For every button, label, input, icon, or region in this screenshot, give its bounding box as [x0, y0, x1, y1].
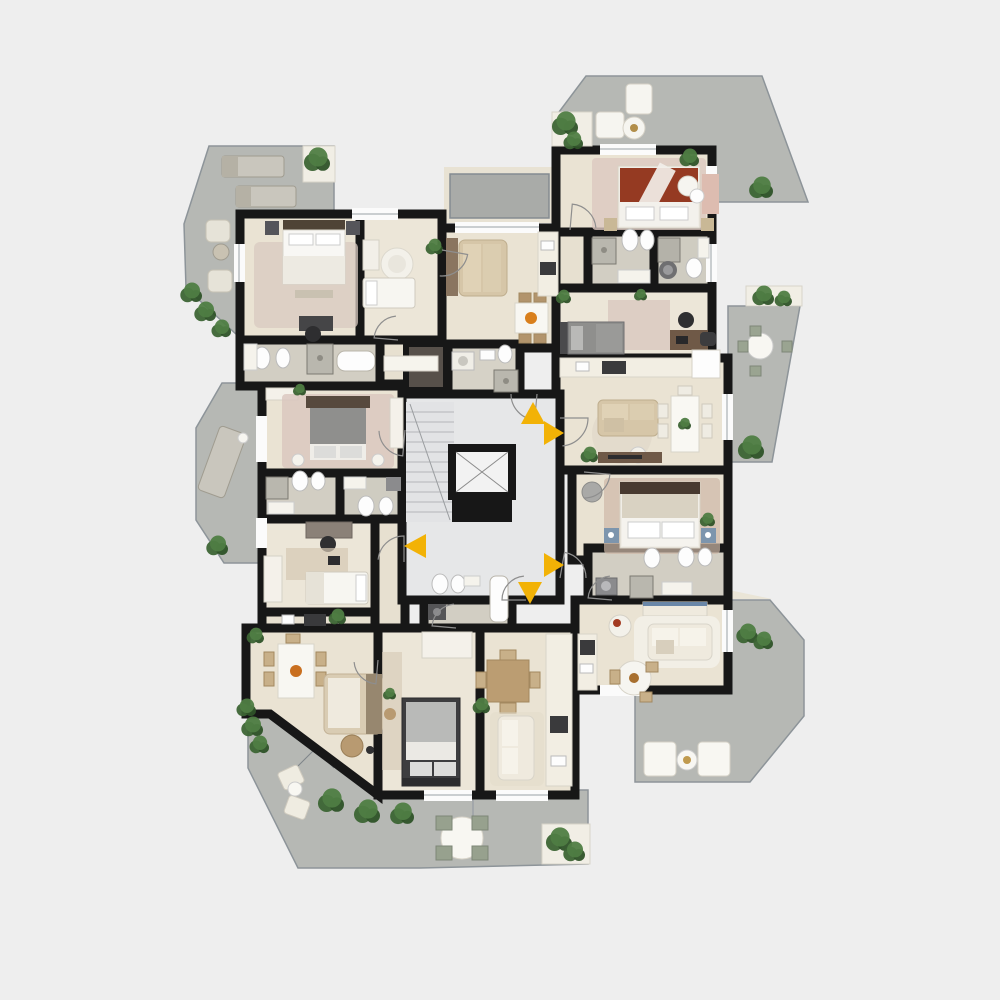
side-table: [384, 708, 396, 720]
plant-foliage: [742, 435, 761, 454]
bathtub: [490, 576, 508, 622]
outdoor-chair: [472, 816, 488, 830]
island-stool: [700, 332, 716, 346]
plant-foliage: [240, 699, 254, 713]
table-dish: [630, 124, 638, 132]
bidet: [451, 575, 465, 593]
plant-foliage: [210, 536, 226, 552]
outdoor-chair: [472, 846, 488, 860]
outdoor-chair: [436, 846, 452, 860]
sideboard: [384, 356, 438, 371]
dining-chair: [640, 692, 652, 702]
floor-plan-canvas: [0, 0, 1000, 1000]
lounger: [698, 742, 730, 776]
tv: [608, 455, 642, 459]
bidet: [311, 472, 325, 490]
office-chair: [678, 312, 694, 328]
bidet: [698, 548, 712, 566]
sink-vanity: [618, 270, 650, 283]
kitchen-sink: [580, 664, 593, 673]
nightstand-lamp: [705, 532, 711, 538]
room-hall-right: [556, 232, 588, 288]
table-dish: [683, 756, 691, 764]
plant-foliage: [245, 717, 261, 733]
console-blue-top: [643, 602, 707, 606]
vanity-desk: [702, 174, 719, 214]
plant-foliage: [778, 291, 791, 304]
bidet: [640, 230, 654, 250]
floor-plan-svg: [0, 0, 1000, 1000]
nightstand: [265, 221, 279, 235]
plant-foliage: [358, 799, 377, 818]
plant-foliage: [584, 447, 597, 460]
desk-chair: [305, 326, 321, 342]
shower: [658, 238, 680, 262]
washing-machine: [386, 477, 401, 491]
toilet: [678, 547, 694, 567]
table-dish: [525, 312, 537, 324]
dining-chair: [316, 652, 326, 666]
sofa-cushion: [630, 404, 654, 420]
sink-vanity: [464, 576, 480, 586]
bed-duvet: [283, 256, 345, 284]
shower-drain: [601, 247, 607, 253]
sofa-cushion: [602, 404, 628, 420]
window-balcony-door: [256, 416, 267, 462]
picture-frame: [328, 556, 340, 565]
bed-blanket: [622, 494, 698, 518]
bed-pillow: [571, 326, 583, 350]
plant-foliage: [753, 176, 771, 194]
outdoor-table: [288, 782, 302, 796]
bed-pillow: [662, 522, 694, 538]
armchair: [582, 482, 602, 502]
balcony-center-floor: [450, 174, 549, 218]
bed-headboard: [402, 778, 460, 786]
lounger-back: [222, 156, 238, 177]
pouf: [341, 735, 363, 757]
cushion-red: [613, 619, 621, 627]
plant-foliage: [476, 698, 489, 711]
plant-foliage: [757, 632, 771, 646]
dining-table: [487, 660, 529, 702]
plant-foliage: [253, 736, 267, 750]
plant-foliage: [567, 842, 583, 858]
cooktop: [540, 262, 556, 275]
nightstand: [701, 218, 714, 231]
nightstand: [604, 218, 617, 231]
bed-pillow: [314, 446, 336, 458]
sink-vanity: [480, 350, 495, 360]
window: [256, 518, 267, 548]
bed-bench: [295, 290, 333, 298]
plant-foliage: [567, 132, 581, 146]
cooktop: [304, 614, 326, 626]
bed-sheet: [406, 742, 456, 760]
toilet: [498, 345, 512, 363]
shower: [630, 576, 653, 598]
bed-blanket: [596, 324, 622, 352]
sink-vanity: [244, 344, 257, 370]
washing-machine-door: [601, 581, 611, 591]
bidet: [276, 348, 290, 368]
outdoor-chair: [750, 326, 761, 336]
kitchen-sink: [541, 241, 554, 250]
sofa-throw: [656, 640, 674, 654]
plant-foliage: [550, 827, 569, 846]
bed-headboard: [306, 396, 370, 408]
lounger: [644, 742, 676, 776]
dining-chair: [264, 672, 274, 686]
plant-foliage: [683, 149, 697, 163]
plant-foliage: [215, 320, 229, 334]
toilet: [358, 496, 374, 516]
nightstand: [346, 221, 360, 235]
washing-machine-door: [433, 608, 441, 616]
bathtub: [337, 351, 375, 371]
bed-pillow: [289, 234, 313, 245]
cooktop: [580, 640, 595, 655]
wall-block: [452, 496, 512, 522]
plant-foliage: [636, 289, 646, 299]
toilet: [432, 574, 448, 594]
washing-machine-door: [458, 356, 468, 366]
wardrobe: [446, 238, 458, 296]
outdoor-armchair: [208, 270, 232, 292]
bed-pillow: [316, 234, 340, 245]
kitchen-island: [692, 350, 720, 378]
wardrobe: [264, 556, 282, 602]
dining-chair: [519, 334, 531, 343]
sink-vanity: [662, 582, 692, 595]
bed-pillow: [626, 207, 654, 220]
bed-blanket: [306, 572, 324, 604]
dining-chair: [702, 424, 712, 438]
wardrobe: [422, 632, 472, 658]
plant-foliage: [558, 290, 569, 301]
shower-drain: [317, 355, 323, 361]
shower: [266, 477, 288, 499]
dining-chair: [534, 334, 546, 343]
nightstand-lamp: [608, 532, 614, 538]
outdoor-armchair: [626, 84, 652, 114]
dining-chair: [476, 672, 486, 688]
sofa-cushion: [680, 628, 706, 646]
kitchen-sink: [576, 362, 589, 371]
toilet: [292, 471, 308, 491]
plant-foliage: [385, 688, 395, 698]
plant-foliage: [295, 384, 305, 394]
plant-foliage: [429, 239, 442, 252]
bed-headboard: [560, 322, 568, 354]
outdoor-table: [747, 333, 773, 359]
sofa-throw: [604, 418, 624, 432]
outdoor-table: [238, 433, 248, 443]
bed-pillow: [434, 762, 456, 776]
floor-lamp: [366, 746, 374, 754]
outdoor-chair: [750, 366, 761, 376]
bed-pillow: [356, 575, 366, 601]
dining-chair: [678, 386, 692, 395]
nightstand: [372, 454, 384, 466]
sofa-cushion: [502, 748, 518, 774]
sofa-cushion: [502, 720, 518, 746]
plant-foliage: [394, 802, 412, 820]
toilet: [686, 258, 702, 278]
dining-chair: [519, 293, 531, 302]
bidet: [379, 497, 393, 515]
outdoor-armchair: [206, 220, 230, 242]
nightstand: [292, 454, 304, 466]
outdoor-chair: [782, 341, 792, 352]
toilet: [622, 229, 638, 251]
laptop: [676, 336, 688, 344]
outdoor-table: [213, 244, 229, 260]
dining-chair: [658, 404, 668, 418]
bed-pillow: [628, 522, 660, 538]
dining-chair: [658, 424, 668, 438]
bed-headboard: [620, 482, 700, 494]
dining-chair: [530, 672, 540, 688]
dining-chair: [500, 703, 516, 713]
table-dish: [629, 673, 639, 683]
plant-foliage: [756, 286, 772, 302]
plant-stand: [363, 240, 379, 270]
vanity-chair: [690, 189, 704, 203]
plant-foliage: [308, 147, 327, 166]
cooktop: [550, 716, 568, 733]
cooktop: [602, 361, 626, 374]
sofa-cushion: [463, 244, 481, 292]
table-dish: [290, 665, 302, 677]
desk: [306, 522, 352, 538]
plant-foliage: [680, 418, 690, 428]
plant-foliage: [332, 609, 345, 622]
sink-vanity: [268, 502, 294, 514]
plant-foliage: [184, 283, 200, 299]
staircase: [406, 402, 454, 522]
dresser: [390, 398, 403, 448]
kitchen-sink: [282, 615, 294, 624]
outdoor-armchair: [596, 112, 624, 138]
balcony-right: [728, 306, 800, 462]
outdoor-chair: [436, 816, 452, 830]
plant-foliage: [322, 788, 341, 807]
bed-duvet: [310, 408, 366, 444]
bed-pillow: [340, 446, 362, 458]
armchair-fluffy-seat: [388, 255, 406, 273]
sofa-back: [366, 674, 382, 734]
kitchen-sink: [551, 756, 566, 766]
bed-pillow: [410, 762, 432, 776]
plant-foliage: [740, 624, 756, 640]
plant-foliage: [250, 628, 263, 641]
armchair: [609, 615, 631, 637]
bed-pillow: [660, 207, 688, 220]
dining-chair: [646, 662, 658, 672]
plant-foliage: [702, 513, 713, 524]
dining-chair: [286, 634, 300, 643]
sofa-cushion: [328, 678, 360, 728]
dining-chair: [702, 404, 712, 418]
dining-chair: [610, 670, 620, 684]
washing-machine-door: [663, 265, 673, 275]
sink-vanity: [344, 477, 366, 489]
dining-chair: [264, 652, 274, 666]
sink-vanity: [698, 238, 709, 258]
sofa-cushion: [483, 244, 501, 292]
lounger-back: [236, 186, 251, 207]
bed-pillow: [366, 281, 377, 305]
dining-chair: [500, 650, 516, 660]
toilet: [644, 548, 660, 568]
outdoor-chair: [738, 341, 748, 352]
plant-foliage: [198, 302, 214, 318]
shower-drain: [503, 378, 509, 384]
plant-foliage: [556, 111, 575, 130]
bed-headboard: [283, 220, 345, 230]
